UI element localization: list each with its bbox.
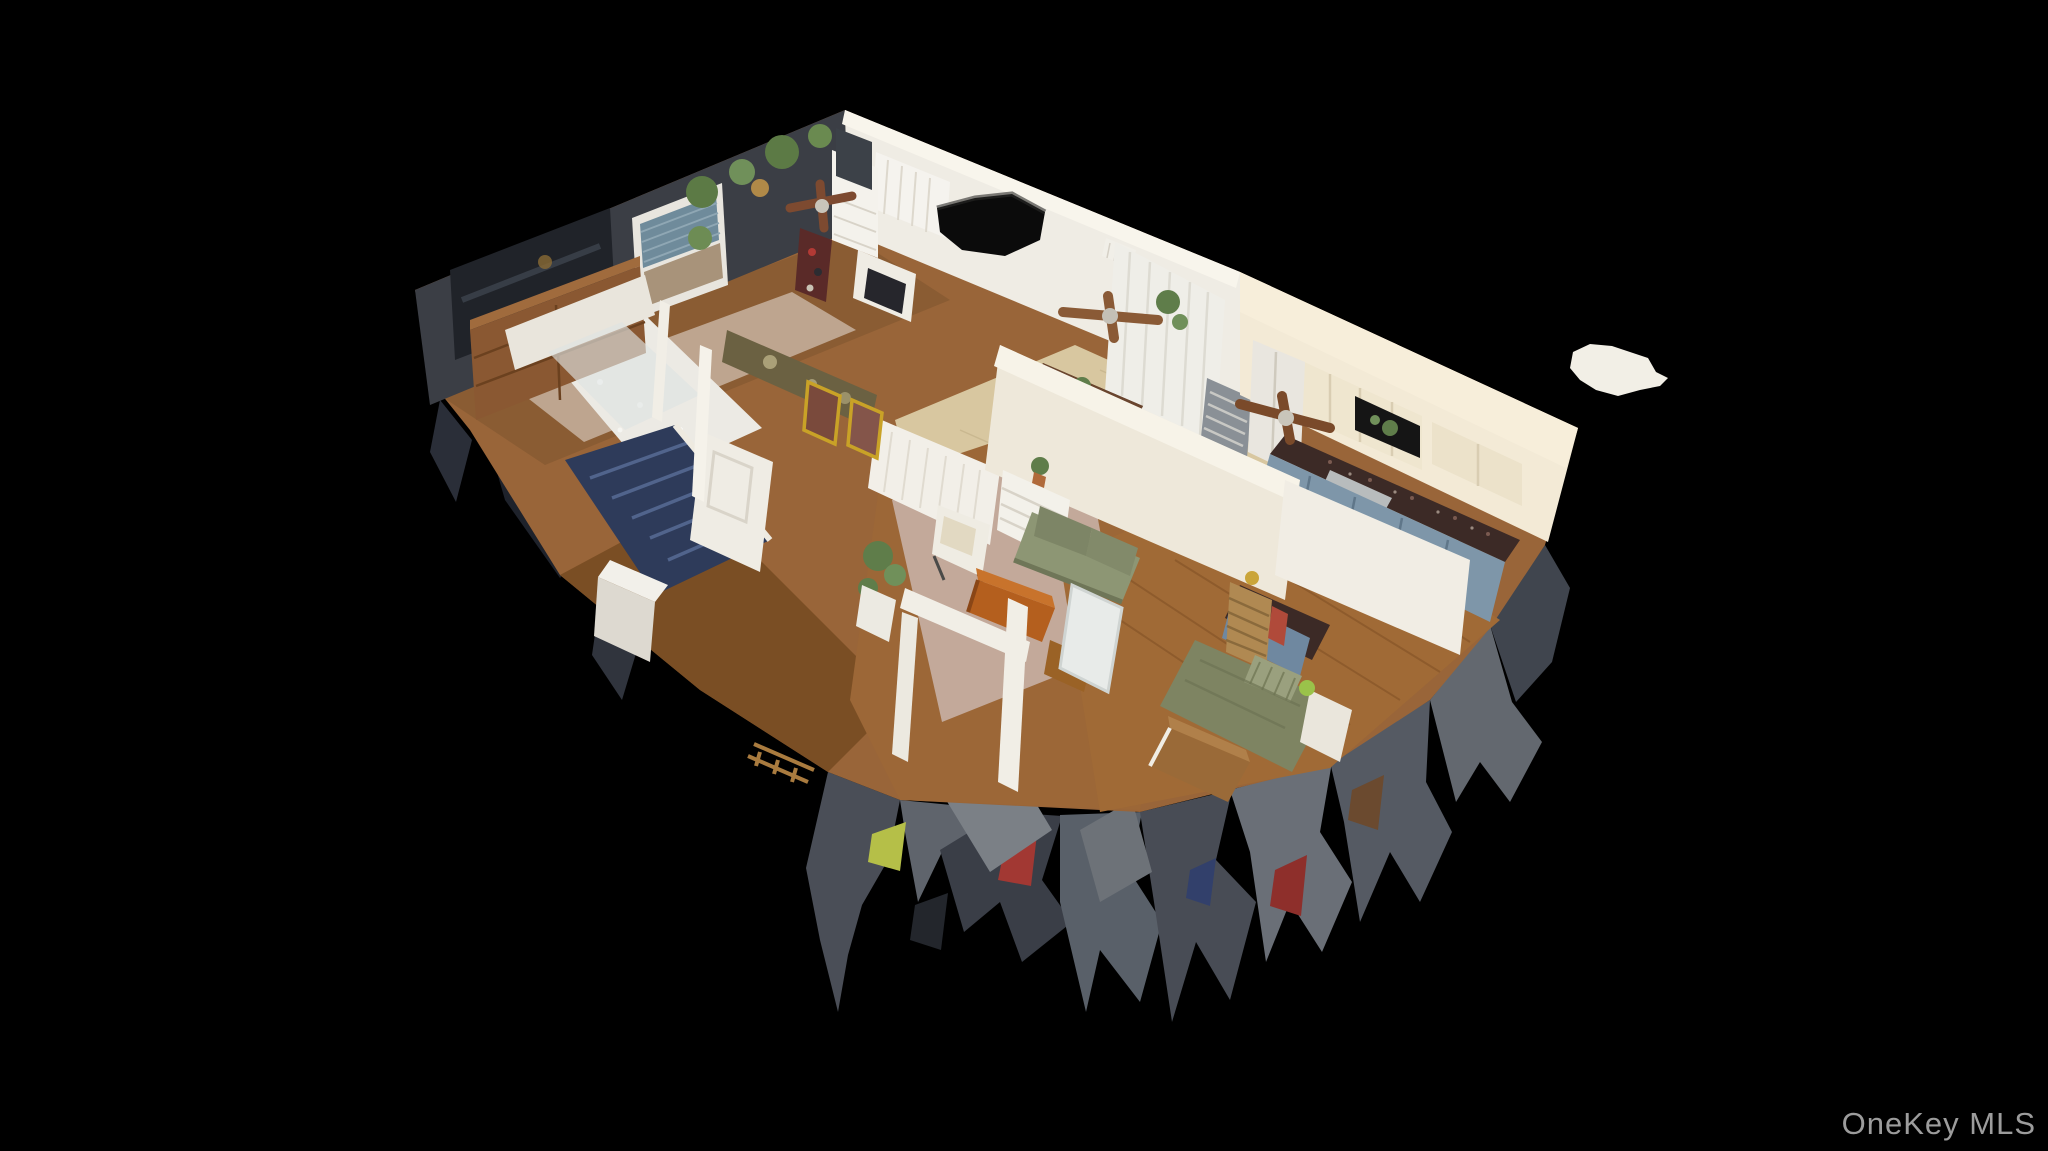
closet-shelf: [795, 228, 832, 302]
dollhouse-render: OneKey MLS: [0, 0, 2048, 1151]
mls-photo-3d-dollhouse: OneKey MLS: [0, 0, 2048, 1151]
watermark-text: OneKey MLS: [1842, 1106, 2036, 1141]
